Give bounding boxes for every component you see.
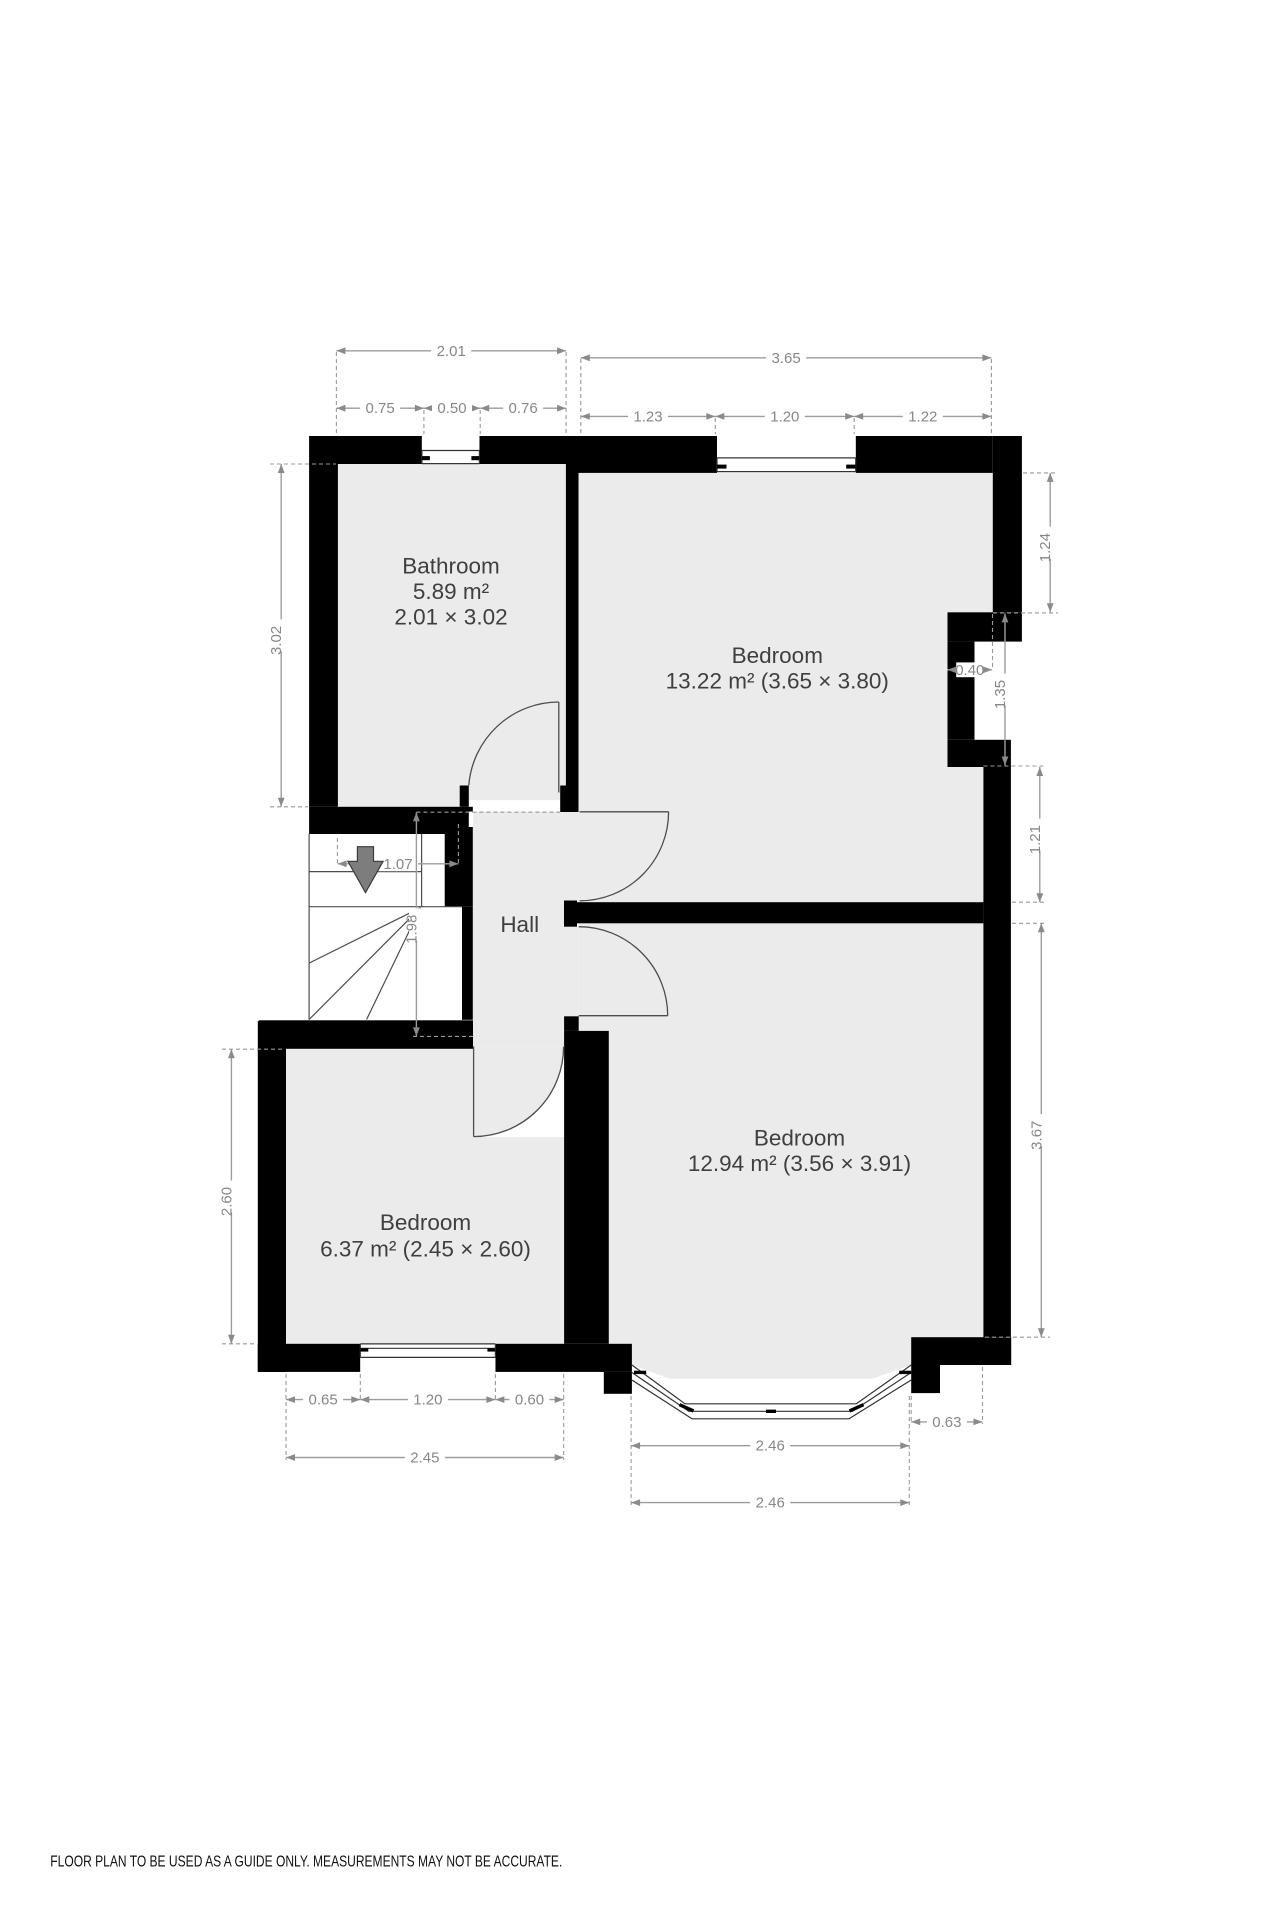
svg-text:2.01: 2.01	[437, 343, 466, 360]
svg-text:1.22: 1.22	[908, 408, 937, 425]
svg-text:3.02: 3.02	[268, 626, 285, 655]
svg-text:1.35: 1.35	[992, 680, 1009, 709]
svg-text:6.37 m² (2.45 × 2.60): 6.37 m² (2.45 × 2.60)	[320, 1237, 531, 1262]
svg-text:FLOOR PLAN TO BE USED AS A GUI: FLOOR PLAN TO BE USED AS A GUIDE ONLY. M…	[50, 1854, 562, 1871]
svg-text:0.40: 0.40	[955, 662, 984, 679]
svg-text:2.01 × 3.02: 2.01 × 3.02	[394, 604, 507, 629]
svg-text:1.07: 1.07	[383, 856, 412, 873]
svg-text:0.65: 0.65	[308, 1392, 337, 1409]
svg-text:1.20: 1.20	[770, 408, 799, 425]
svg-text:5.89 m²: 5.89 m²	[413, 579, 490, 604]
svg-text:0.75: 0.75	[365, 400, 394, 417]
svg-text:12.94 m² (3.56 × 3.91): 12.94 m² (3.56 × 3.91)	[688, 1151, 911, 1176]
svg-text:13.22 m² (3.65 × 3.80): 13.22 m² (3.65 × 3.80)	[666, 669, 889, 694]
svg-text:3.65: 3.65	[771, 350, 800, 367]
svg-text:0.63: 0.63	[932, 1414, 961, 1431]
svg-text:0.50: 0.50	[437, 400, 466, 417]
svg-text:Hall: Hall	[500, 912, 539, 937]
svg-text:1.20: 1.20	[413, 1392, 442, 1409]
svg-text:1.98: 1.98	[403, 915, 420, 944]
svg-text:1.24: 1.24	[1037, 533, 1054, 562]
svg-text:Bedroom: Bedroom	[754, 1126, 845, 1151]
svg-text:2.46: 2.46	[756, 1438, 785, 1455]
svg-text:3.67: 3.67	[1028, 1121, 1045, 1150]
svg-text:Bedroom: Bedroom	[380, 1210, 471, 1235]
svg-text:2.45: 2.45	[410, 1450, 439, 1467]
svg-text:2.46: 2.46	[756, 1495, 785, 1512]
svg-text:1.23: 1.23	[633, 408, 662, 425]
svg-text:Bedroom: Bedroom	[732, 643, 823, 668]
svg-text:0.60: 0.60	[515, 1392, 544, 1409]
svg-text:Bathroom: Bathroom	[402, 554, 500, 579]
svg-text:2.60: 2.60	[218, 1187, 235, 1216]
svg-text:0.76: 0.76	[508, 400, 537, 417]
svg-text:1.21: 1.21	[1027, 825, 1044, 854]
